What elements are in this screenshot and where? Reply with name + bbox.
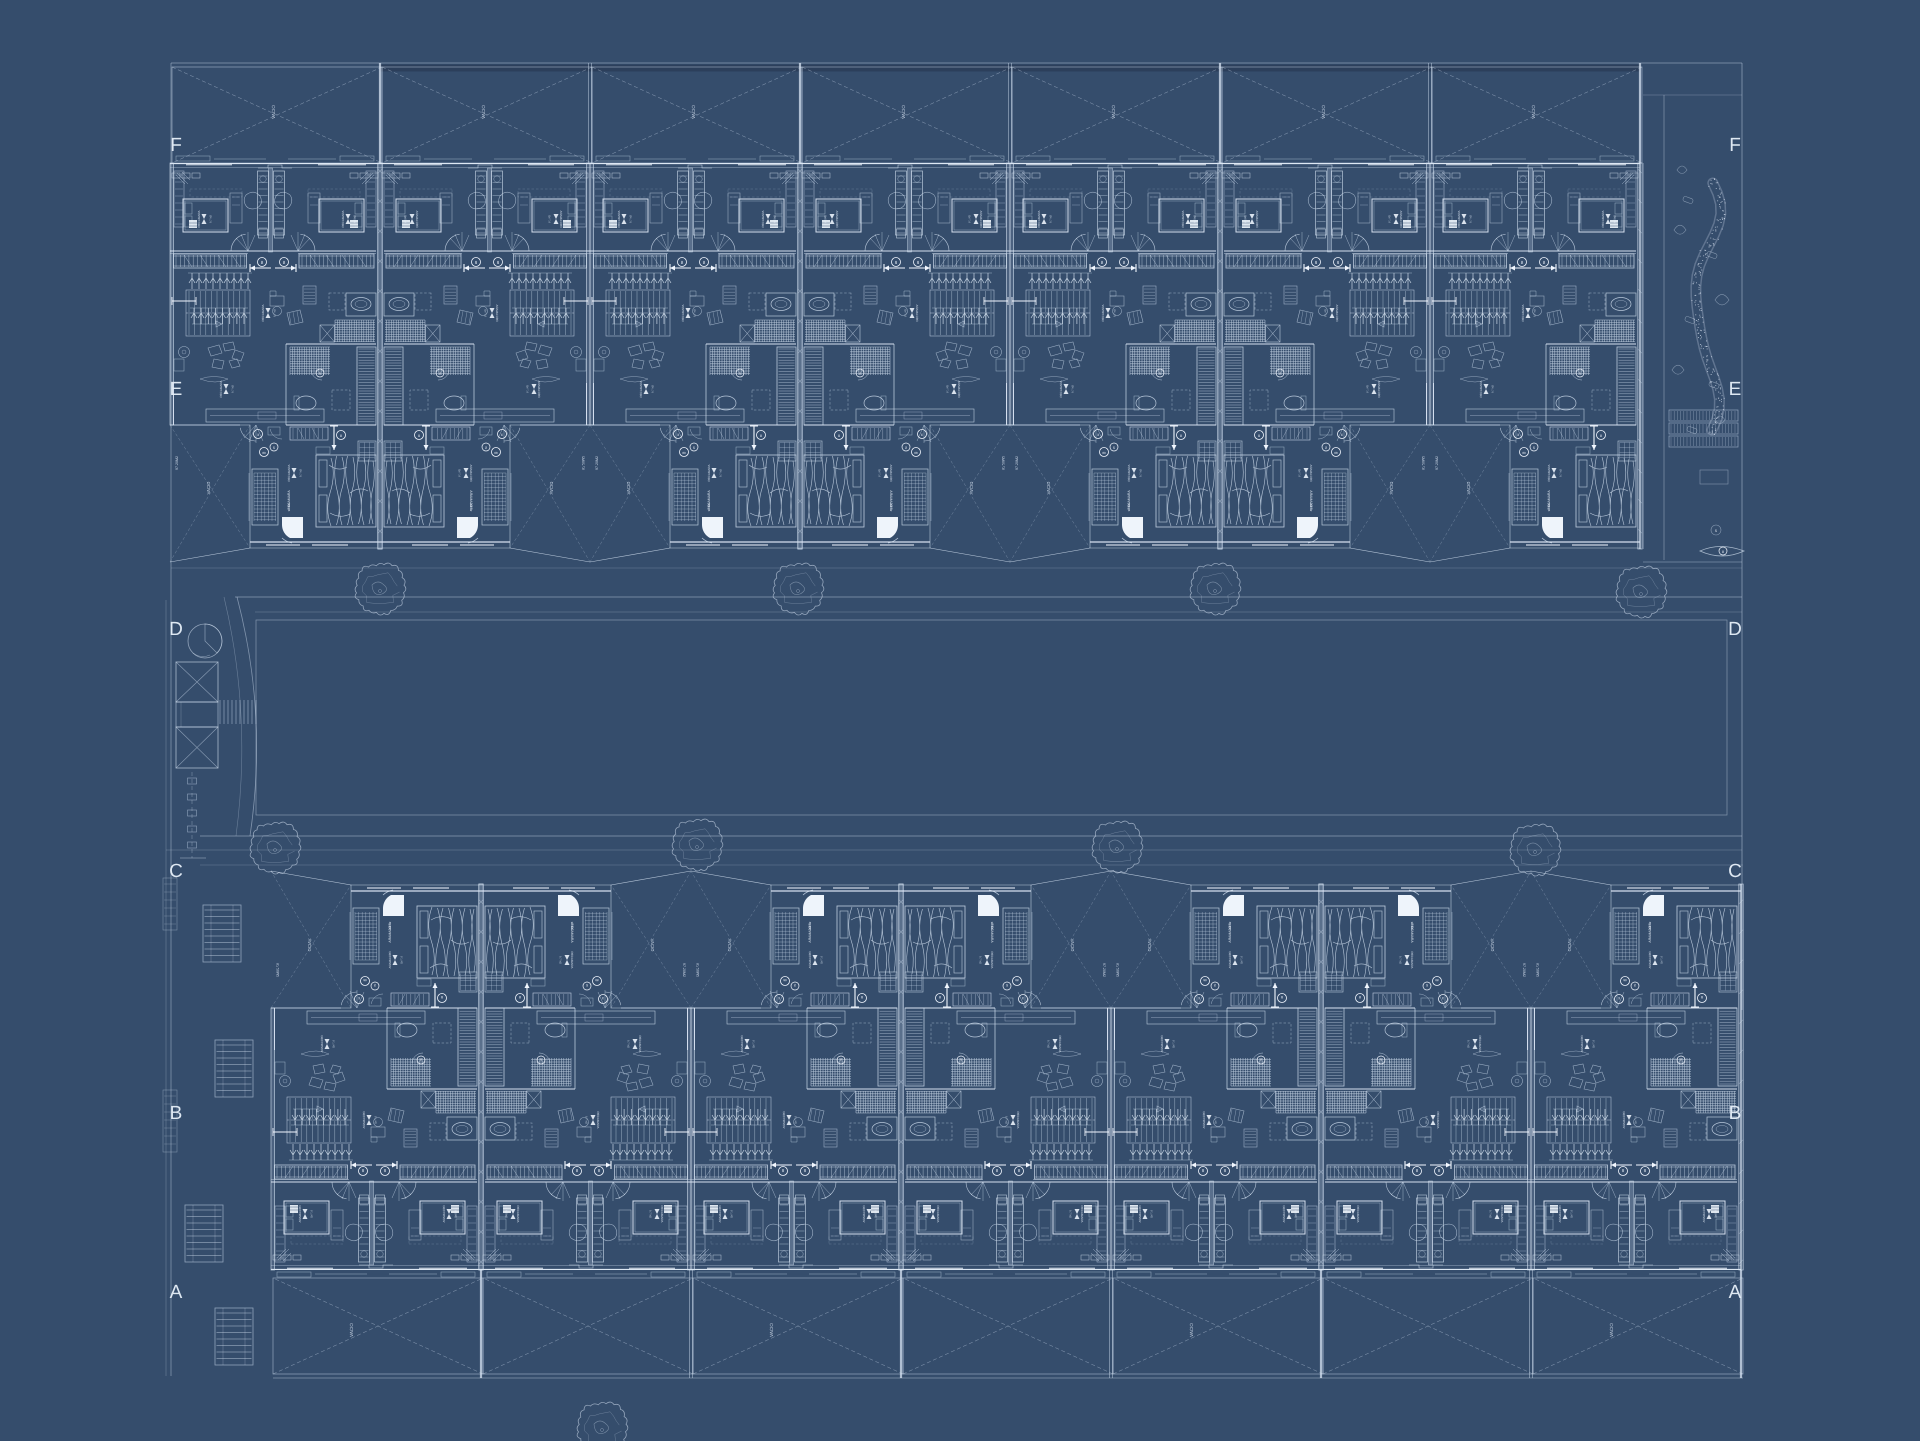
svg-text:B: B bbox=[1729, 1103, 1742, 1124]
svg-text:D: D bbox=[169, 619, 183, 640]
svg-text:A: A bbox=[170, 1282, 183, 1303]
svg-text:VACIO: VACIO bbox=[481, 105, 486, 119]
svg-text:C: C bbox=[169, 861, 183, 882]
svg-text:F: F bbox=[170, 135, 182, 156]
svg-text:8: 8 bbox=[1722, 550, 1724, 554]
svg-text:D: D bbox=[1728, 619, 1742, 640]
svg-text:F: F bbox=[1729, 135, 1741, 156]
svg-text:VACIO: VACIO bbox=[349, 1323, 354, 1337]
svg-text:5: 5 bbox=[1715, 529, 1717, 533]
svg-text:VACIO: VACIO bbox=[1111, 105, 1116, 119]
svg-text:B: B bbox=[170, 1103, 183, 1124]
svg-text:VACIO: VACIO bbox=[1609, 1323, 1614, 1337]
svg-text:VACIO: VACIO bbox=[1321, 105, 1326, 119]
svg-text:VACIO: VACIO bbox=[691, 105, 696, 119]
svg-text:VACIO: VACIO bbox=[1531, 105, 1536, 119]
svg-text:VACIO: VACIO bbox=[769, 1323, 774, 1337]
svg-text:E: E bbox=[1729, 379, 1742, 400]
svg-text:VACIO: VACIO bbox=[1189, 1323, 1194, 1337]
svg-text:VACIO: VACIO bbox=[901, 105, 906, 119]
svg-text:C: C bbox=[1728, 861, 1742, 882]
svg-text:VACIO: VACIO bbox=[271, 105, 276, 119]
svg-text:E: E bbox=[170, 379, 183, 400]
svg-text:A: A bbox=[1729, 1282, 1742, 1303]
